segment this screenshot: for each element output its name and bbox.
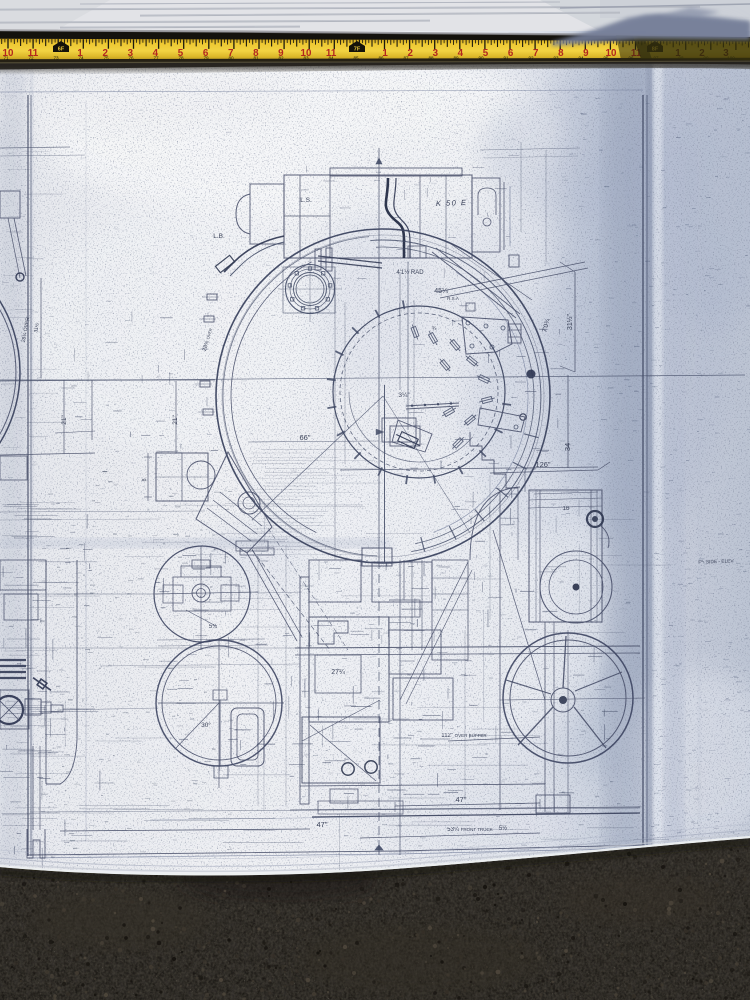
- svg-text:30°: 30°: [201, 721, 211, 729]
- svg-text:80: 80: [228, 55, 234, 60]
- svg-text:47": 47": [316, 820, 327, 829]
- svg-text:¾: ¾: [432, 326, 437, 332]
- svg-text:9: 9: [583, 48, 589, 59]
- svg-text:L.B.: L.B.: [213, 233, 225, 240]
- svg-text:5½: 5½: [499, 825, 507, 832]
- svg-text:31½": 31½": [566, 313, 574, 330]
- svg-text:73: 73: [53, 55, 59, 60]
- svg-text:82: 82: [278, 55, 284, 60]
- svg-text:77: 77: [153, 55, 159, 60]
- svg-text:K 50 E: K 50 E: [436, 198, 468, 208]
- svg-text:88: 88: [428, 55, 434, 60]
- svg-text:21": 21": [61, 415, 68, 425]
- svg-text:7F: 7F: [354, 47, 361, 53]
- svg-text:91: 91: [503, 55, 509, 60]
- svg-text:L.S.: L.S.: [300, 197, 312, 204]
- svg-text:Fº› SIDE - ELEV: Fº› SIDE - ELEV: [698, 558, 734, 565]
- svg-text:95: 95: [603, 55, 609, 60]
- svg-text:75: 75: [103, 55, 109, 60]
- svg-text:34: 34: [563, 443, 572, 451]
- svg-text:27¼: 27¼: [331, 669, 345, 676]
- svg-text:R.S.A: R.S.A: [447, 296, 459, 301]
- svg-text:79: 79: [203, 55, 209, 60]
- svg-text:78: 78: [178, 55, 184, 60]
- svg-text:94: 94: [578, 55, 584, 60]
- svg-text:92: 92: [528, 55, 534, 60]
- svg-text:4'1½ RAD: 4'1½ RAD: [396, 269, 424, 276]
- svg-text:5: 5: [483, 48, 489, 59]
- svg-text:81: 81: [253, 55, 259, 60]
- svg-text:76: 76: [128, 55, 134, 60]
- svg-text:74: 74: [78, 55, 84, 60]
- svg-text:8: 8: [142, 478, 148, 481]
- svg-text:21": 21": [172, 415, 179, 425]
- svg-text:3¼": 3¼": [398, 392, 410, 399]
- svg-text:8: 8: [558, 48, 564, 59]
- svg-text:89: 89: [453, 55, 459, 60]
- svg-text:83: 83: [303, 55, 309, 60]
- svg-text:86: 86: [378, 55, 384, 60]
- svg-text:6F: 6F: [58, 47, 65, 53]
- svg-text:87: 87: [403, 55, 409, 60]
- svg-text:84: 84: [328, 55, 334, 60]
- svg-text:7: 7: [533, 48, 539, 59]
- svg-text:71: 71: [3, 55, 9, 60]
- svg-text:90: 90: [478, 55, 484, 60]
- svg-text:66": 66": [299, 433, 310, 442]
- svg-text:93: 93: [553, 55, 559, 60]
- svg-text:85: 85: [353, 55, 359, 60]
- svg-text:72: 72: [28, 55, 34, 60]
- svg-text:6: 6: [508, 48, 514, 59]
